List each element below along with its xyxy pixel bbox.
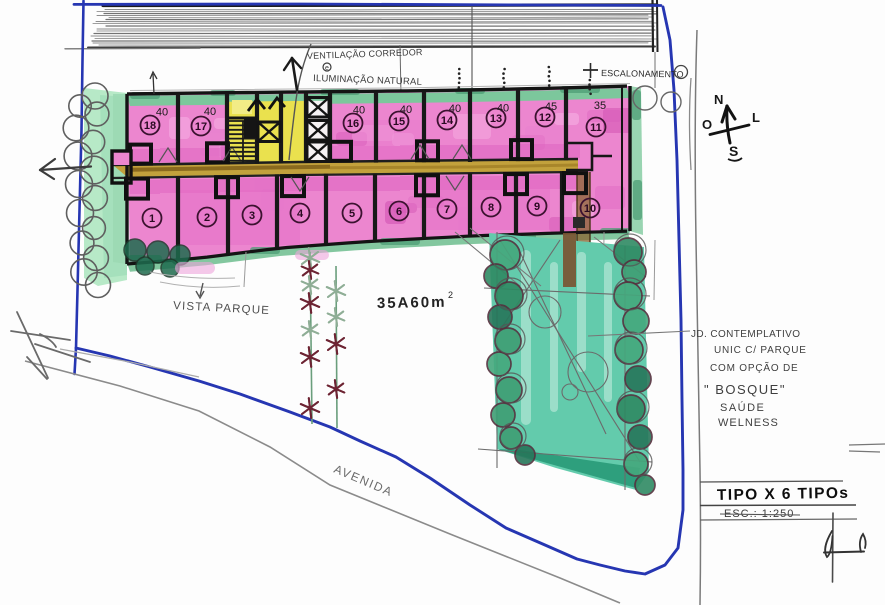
svg-text:TIPO X 6 TIPOs: TIPO X 6 TIPOs [717, 485, 850, 504]
svg-text:N: N [714, 92, 723, 107]
svg-text:40: 40 [449, 103, 461, 115]
svg-text:2: 2 [204, 212, 210, 224]
svg-text:COM OPÇÃO DE: COM OPÇÃO DE [710, 361, 799, 374]
svg-text:12: 12 [539, 112, 551, 124]
svg-text:35: 35 [594, 100, 606, 112]
svg-text:UNIC C/ PARQUE: UNIC C/ PARQUE [714, 345, 807, 356]
svg-text:40: 40 [156, 107, 168, 119]
svg-text:SAÚDE: SAÚDE [720, 401, 765, 414]
svg-text:40: 40 [353, 104, 365, 116]
svg-text:9: 9 [534, 201, 540, 213]
svg-text:16: 16 [347, 118, 359, 130]
svg-text:35A60m: 35A60m [377, 294, 447, 312]
svg-text:2: 2 [448, 290, 453, 300]
svg-text:ESCALONAMENTO: ESCALONAMENTO [601, 68, 684, 79]
svg-text:6: 6 [396, 206, 402, 218]
svg-text:8: 8 [488, 202, 494, 214]
svg-text:17: 17 [195, 121, 207, 133]
svg-text:L: L [752, 110, 760, 125]
svg-text:1: 1 [149, 213, 155, 225]
svg-text:JD. CONTEMPLATIVO: JD. CONTEMPLATIVO [691, 329, 800, 340]
svg-text:WELNESS: WELNESS [718, 417, 779, 429]
svg-text:3: 3 [249, 210, 255, 222]
svg-text:45: 45 [545, 101, 557, 113]
svg-text:18: 18 [144, 120, 156, 132]
svg-text:10: 10 [584, 203, 596, 215]
svg-text:40: 40 [400, 104, 412, 116]
svg-text:14: 14 [441, 115, 454, 127]
svg-text:S: S [729, 143, 738, 159]
svg-text:e: e [325, 65, 329, 72]
svg-text:40: 40 [497, 102, 509, 114]
svg-text:40: 40 [204, 106, 216, 118]
svg-text:4: 4 [297, 208, 304, 220]
svg-text:5: 5 [349, 208, 355, 220]
svg-text:11: 11 [590, 122, 602, 134]
svg-text:7: 7 [444, 204, 450, 216]
svg-text:" BOSQUE": " BOSQUE" [704, 382, 786, 397]
svg-text:13: 13 [490, 113, 502, 125]
svg-text:O: O [702, 117, 712, 132]
svg-text:15: 15 [393, 116, 405, 128]
